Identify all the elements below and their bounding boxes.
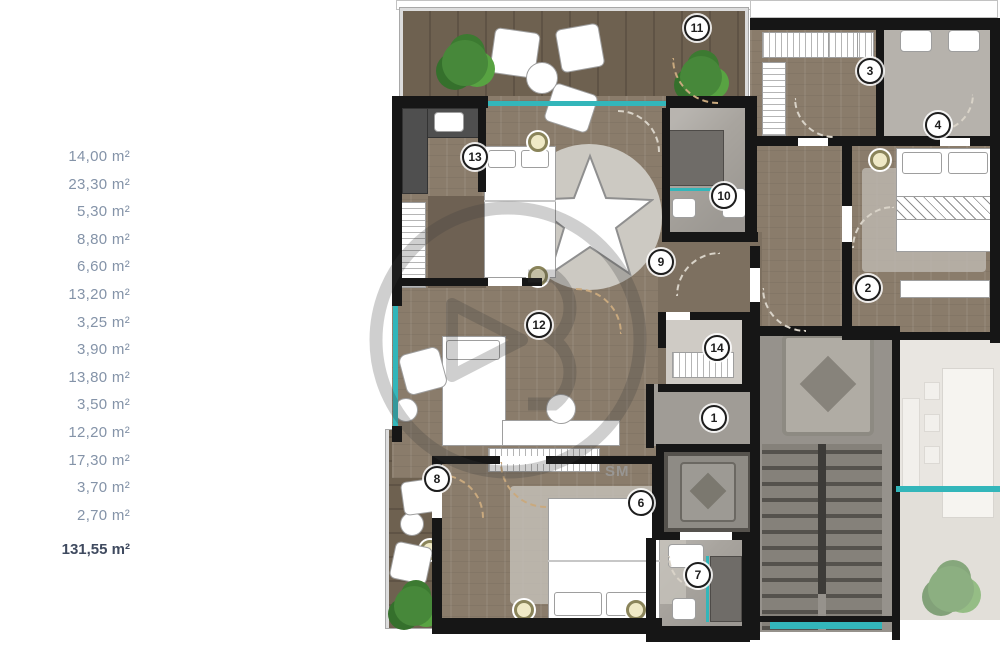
wall (742, 312, 750, 392)
pillow (521, 150, 549, 168)
wall (392, 96, 488, 108)
washer (828, 32, 858, 58)
room-marker-3: 3 (857, 58, 883, 84)
window-glass (393, 306, 398, 426)
shower (668, 130, 724, 186)
wall (392, 426, 402, 442)
total-area: 131,55 m² (0, 536, 130, 564)
closet-shelf (762, 62, 786, 136)
room-marker-10: 10 (711, 183, 737, 209)
area-value: 12,20 m² (0, 419, 130, 447)
stair-divider (818, 444, 826, 594)
neighbor-plant (928, 566, 974, 612)
room-marker-2: 2 (855, 275, 881, 301)
room-marker-12: 12 (526, 312, 552, 338)
room-marker-13: 13 (462, 144, 488, 170)
neighbor-chair (924, 446, 940, 464)
wall (658, 312, 666, 348)
dresser (900, 280, 990, 298)
wall (652, 456, 662, 540)
window-glass (770, 622, 882, 629)
bedside-lamp (514, 600, 534, 620)
neighbor-dining-table (942, 368, 994, 518)
sm-label: SM (605, 463, 630, 480)
door-opening (798, 138, 828, 146)
blanket-band (896, 196, 994, 220)
area-value: 13,20 m² (0, 281, 130, 309)
room-marker-14: 14 (704, 335, 730, 361)
lounge-chair (555, 23, 606, 74)
room-marker-1: 1 (701, 405, 727, 431)
area-value: 17,30 m² (0, 447, 130, 475)
area-list: 14,00 m² 23,30 m² 5,30 m² 8,80 m² 6,60 m… (0, 143, 130, 564)
door-opening (940, 138, 970, 146)
pillow (948, 152, 988, 174)
sink (900, 30, 932, 52)
floor-plan: SM 1 2 3 4 6 7 8 9 10 11 12 13 14 (380, 0, 1000, 664)
round-table (400, 512, 424, 536)
toilet (672, 598, 696, 620)
wall (990, 18, 1000, 343)
window-glass (896, 486, 1000, 492)
parapet (750, 0, 998, 18)
balcony-plant (394, 586, 434, 626)
area-value: 3,25 m² (0, 309, 130, 337)
wall (658, 384, 750, 392)
wall (662, 232, 758, 242)
room-marker-8: 8 (424, 466, 450, 492)
blanket-line (548, 560, 660, 562)
toilet (672, 198, 696, 218)
sink (948, 30, 980, 52)
area-value: 3,50 m² (0, 391, 130, 419)
wall (742, 538, 750, 634)
area-value: 13,80 m² (0, 364, 130, 392)
wall (656, 444, 760, 452)
window-glass (488, 101, 666, 106)
area-value: 5,30 m² (0, 198, 130, 226)
wall (646, 384, 654, 448)
dressing-corridor-floor (428, 196, 486, 288)
wall (432, 618, 662, 634)
bedside-lamp (870, 150, 890, 170)
wall (392, 96, 402, 306)
kitchen-counter (402, 108, 428, 194)
shower (710, 556, 742, 622)
area-value: 3,90 m² (0, 336, 130, 364)
room-marker-6: 6 (628, 490, 654, 516)
area-value: 14,00 m² (0, 143, 130, 171)
blanket-line (484, 200, 556, 202)
pillow (902, 152, 942, 174)
wall (662, 108, 670, 234)
terrace-plant (442, 40, 488, 86)
door-opening (488, 278, 522, 286)
neighbor-sideboard (902, 398, 920, 488)
stair-flight (762, 444, 818, 630)
door-opening (842, 206, 852, 242)
room-marker-7: 7 (685, 562, 711, 588)
wall (750, 18, 1000, 30)
neighbor-chair (924, 382, 940, 400)
area-value: 6,60 m² (0, 253, 130, 281)
area-value: 2,70 m² (0, 502, 130, 530)
area-value: 8,80 m² (0, 226, 130, 254)
area-value: 23,30 m² (0, 171, 130, 199)
neighbor-chair (924, 414, 940, 432)
stair-flight (826, 444, 882, 630)
area-value: 3,70 m² (0, 474, 130, 502)
door-opening (666, 312, 690, 320)
wall (892, 326, 900, 640)
wall (745, 96, 757, 238)
wall (842, 332, 1000, 340)
pillow (554, 592, 602, 616)
round-table (526, 62, 558, 94)
chair (388, 540, 433, 585)
bedside-lamp (626, 600, 646, 620)
wall (750, 326, 760, 640)
bedside-lamp (528, 132, 548, 152)
pillow (488, 150, 516, 168)
kitchen-sink (434, 112, 464, 132)
elevator-door (680, 532, 732, 540)
wall (876, 28, 884, 136)
room-marker-11: 11 (684, 15, 710, 41)
room-marker-4: 4 (925, 112, 951, 138)
door-opening (750, 268, 760, 302)
pillow (446, 340, 500, 360)
room-marker-9: 9 (648, 249, 674, 275)
